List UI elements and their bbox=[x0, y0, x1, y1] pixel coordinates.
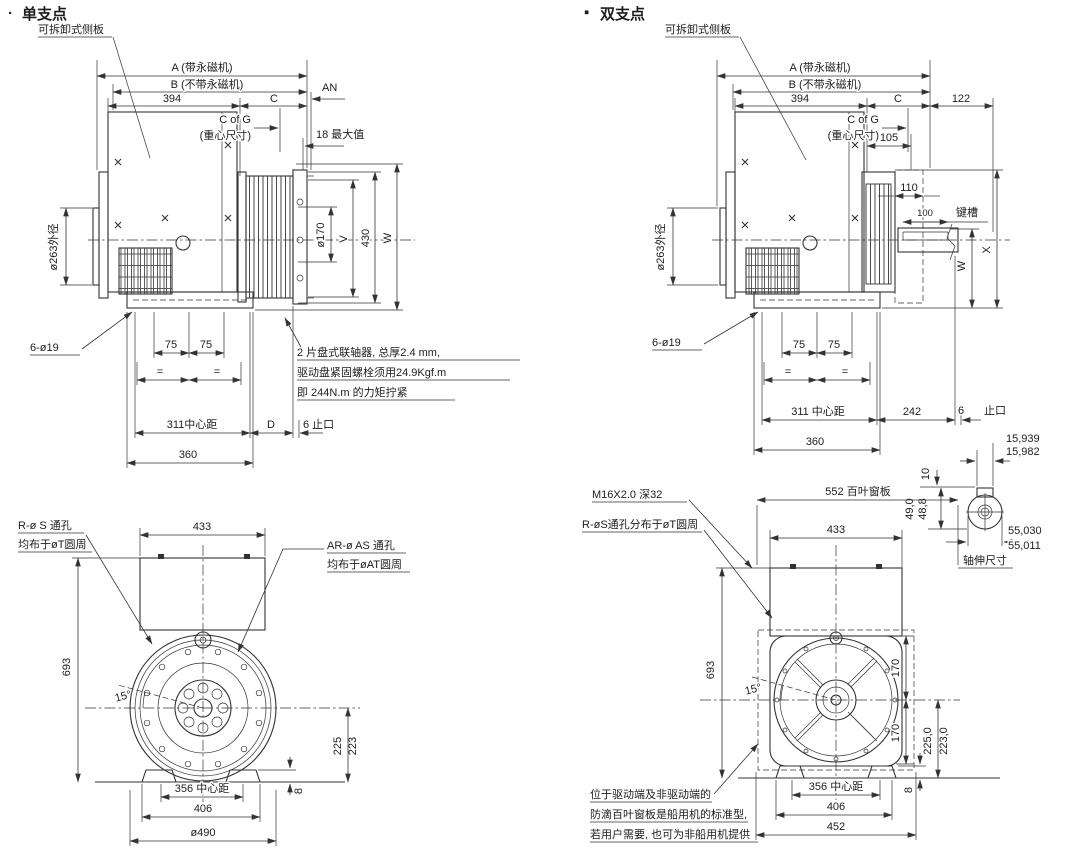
dim-w-right: W bbox=[956, 260, 968, 271]
dim-8-label: 8 bbox=[293, 788, 305, 794]
dim-d-label: D bbox=[267, 419, 275, 431]
double-bearing-side-dims: A (带永磁机) B (不带永磁机) 394 C 122 C of G (重心尺… bbox=[652, 60, 1006, 455]
shaft-break-line bbox=[947, 224, 955, 260]
dim-8-right: 8 bbox=[903, 787, 915, 793]
dim-75a-label: 75 bbox=[165, 339, 177, 351]
dim-eq2: = bbox=[214, 366, 220, 378]
dim-v-label: V bbox=[338, 235, 350, 243]
dim-170b-label: 170 bbox=[890, 724, 902, 742]
nde-bracket bbox=[99, 172, 108, 298]
cog-right: C of G bbox=[847, 114, 879, 126]
cog-sub-right: (重心尺寸) bbox=[828, 128, 879, 142]
keyway-width-min: 15,982 bbox=[1006, 446, 1040, 458]
dim-c-label: C bbox=[270, 93, 278, 105]
louver-note: 位于驱动端及非驱动端的 防滴百叶窗板是船用机的标准型, 若用户需要, 也可为非船… bbox=[590, 744, 758, 842]
panel-single-bearing: · 单支点 可拆卸式侧板 A (带永磁机) B (不带永磁机) bbox=[8, 5, 520, 846]
dim-spigot-right: 止口 bbox=[984, 404, 1006, 417]
pm-machine-right bbox=[720, 208, 726, 285]
dim-b-label: B (不带永磁机) bbox=[171, 77, 244, 91]
holes-rs-right-label: R-øS通孔分布于øT圆周 bbox=[582, 518, 698, 531]
single-bearing-bullet: · bbox=[8, 5, 13, 22]
dim-406-right: 406 bbox=[827, 801, 845, 813]
drawing-canvas: · 单支点 可拆卸式侧板 A (带永磁机) B (不带永磁机) bbox=[0, 0, 1066, 851]
dim-75a-right: 75 bbox=[793, 339, 805, 351]
front-body bbox=[140, 558, 265, 630]
dim-w-label: W bbox=[382, 232, 394, 243]
dim-552-label: 552 百叶窗板 bbox=[825, 484, 890, 498]
pm-machine bbox=[93, 208, 99, 285]
dim-406-label: 406 bbox=[194, 803, 212, 815]
side-plate-callout: 可拆卸式侧板 bbox=[38, 22, 104, 36]
lifting-lug bbox=[176, 236, 190, 250]
dim-10-shaft: 10 bbox=[920, 468, 932, 480]
dim-311-right: 311 中心距 bbox=[791, 405, 845, 418]
holes-rs-label: R-ø S 通孔 bbox=[18, 519, 72, 532]
single-bearing-side-view bbox=[88, 112, 415, 308]
right-foot-right bbox=[868, 766, 896, 778]
single-bearing-front-view bbox=[85, 545, 360, 802]
dim-242-right: 242 bbox=[903, 406, 921, 418]
fan-grille bbox=[866, 184, 891, 284]
double-bearing-bullet: ▪ bbox=[584, 4, 589, 21]
dim-105: 105 bbox=[880, 132, 898, 144]
shaft-detail-label: 轴伸尺寸 bbox=[963, 553, 1007, 567]
right-foot bbox=[226, 770, 260, 782]
dim-170a-label: 170 bbox=[890, 659, 902, 677]
dim-6-right: 6 bbox=[958, 405, 964, 417]
coupling-note-line3: 即 244N.m 的力矩拧紧 bbox=[297, 385, 408, 399]
dim-433-right: 433 bbox=[827, 524, 845, 536]
dim-eq2-right: = bbox=[842, 366, 848, 378]
dim-100: 100 bbox=[917, 208, 933, 219]
dim-eq1: = bbox=[157, 366, 163, 378]
keyway-height-max: 49,0 bbox=[904, 498, 916, 519]
generator-dimension-drawing: · 单支点 可拆卸式侧板 A (带永磁机) B (不带永磁机) bbox=[0, 0, 1066, 851]
coupling-note-line1: 2 片盘式联轴器, 总厚2.4 mm, bbox=[297, 345, 440, 359]
dim-a-right: A (带永磁机) bbox=[789, 60, 850, 74]
double-bearing-title: 双支点 bbox=[600, 5, 645, 23]
panel-double-bearing: ▪ 双支点 可拆卸式侧板 A (带永磁机) B (不带永磁机) 394 bbox=[582, 4, 1042, 842]
keyway-height-min: 48,8 bbox=[917, 498, 929, 519]
shaft-dia-min: 55,011 bbox=[1008, 540, 1041, 552]
m16-label: M16X2.0 深32 bbox=[592, 488, 662, 501]
dim-693-right: 693 bbox=[705, 661, 717, 679]
dim-225-label: 225 bbox=[332, 737, 344, 755]
dim-2230-label: 223,0 bbox=[938, 727, 950, 755]
holes-ar-sub-label: 均布于øAT圆周 bbox=[327, 558, 402, 571]
left-foot-right bbox=[776, 766, 804, 778]
dim-356-right: 356 中心距 bbox=[809, 780, 863, 793]
dim-od490-label: ø490 bbox=[190, 827, 215, 839]
coupling-discs bbox=[246, 176, 293, 298]
dim-433-label: 433 bbox=[193, 521, 211, 533]
dim-75b-label: 75 bbox=[200, 339, 212, 351]
dim-356-label: 356 中心距 bbox=[175, 782, 229, 795]
dim-430-label: 430 bbox=[360, 229, 372, 247]
dim-15deg-right: 15° bbox=[744, 682, 763, 698]
side-plate-callout-right: 可拆卸式侧板 bbox=[665, 22, 731, 36]
dim-spigot-label: 6 止口 bbox=[303, 418, 334, 431]
coupling-note-line2: 驱动盘紧固螺栓须用24.9Kgf.m bbox=[297, 365, 446, 379]
coupling-note: 2 片盘式联轴器, 总厚2.4 mm, 驱动盘紧固螺栓须用24.9Kgf.m 即… bbox=[285, 318, 520, 400]
cog-label: C of G bbox=[219, 114, 251, 126]
dim-394-right: 394 bbox=[791, 93, 809, 105]
air-grille-right bbox=[746, 248, 799, 294]
dim-452-right: 452 bbox=[827, 821, 845, 833]
dim-122-right: 122 bbox=[952, 93, 970, 105]
nde-bracket-right bbox=[726, 172, 735, 298]
dim-75b-right: 75 bbox=[828, 339, 840, 351]
holes-6d19-right: 6-ø19 bbox=[652, 337, 681, 349]
louver-note-line3: 若用户需要, 也可为非船用机提供 bbox=[590, 827, 750, 841]
dim-223-label: 223 bbox=[347, 737, 359, 755]
dim-eq1-right: = bbox=[785, 366, 791, 378]
single-bearing-title: 单支点 bbox=[22, 5, 67, 23]
dim-od170-label: ø170 bbox=[315, 222, 327, 247]
louver-note-line1: 位于驱动端及非驱动端的 bbox=[590, 787, 711, 801]
dim-110: 110 bbox=[900, 182, 918, 194]
shaft-end-detail: 15,939 15,982 10 49,0 48,8 55,030 55,011… bbox=[904, 433, 1042, 568]
dim-360-label: 360 bbox=[179, 449, 197, 461]
dim-311-label: 311中心距 bbox=[167, 418, 218, 431]
dim-2250-label: 225,0 bbox=[922, 727, 934, 755]
dim-693-label: 693 bbox=[61, 658, 73, 676]
lifting-lug-right bbox=[803, 236, 817, 250]
shaft-dia-max: 55,030 bbox=[1008, 525, 1042, 537]
dim-360-right: 360 bbox=[806, 436, 824, 448]
holes-6d19-label: 6-ø19 bbox=[30, 342, 59, 354]
holes-ar-label: AR-ø AS 通孔 bbox=[327, 539, 395, 552]
cog-sub-label: (重心尺寸) bbox=[200, 128, 251, 142]
dim-a-label: A (带永磁机) bbox=[171, 60, 232, 74]
dim-b-right: B (不带永磁机) bbox=[789, 77, 862, 91]
louver-note-line2: 防滴百叶窗板是船用机的标准型, bbox=[590, 807, 747, 821]
dim-18max-label: 18 最大值 bbox=[316, 127, 364, 141]
air-grille bbox=[119, 248, 172, 294]
keyway-width-max: 15,939 bbox=[1006, 433, 1040, 445]
keyway-label: 键槽 bbox=[956, 205, 978, 219]
left-foot bbox=[142, 770, 176, 782]
dim-c-right: C bbox=[894, 93, 902, 105]
holes-rs-sub-label: 均布于øT圆周 bbox=[18, 538, 86, 551]
dim-394-label: 394 bbox=[163, 93, 181, 105]
dim-od263-label: ø263外径 bbox=[47, 223, 60, 270]
dim-an-label: AN bbox=[322, 82, 337, 94]
dim-od263-right: ø263外径 bbox=[654, 223, 667, 270]
dim-x-right: X bbox=[981, 246, 993, 254]
